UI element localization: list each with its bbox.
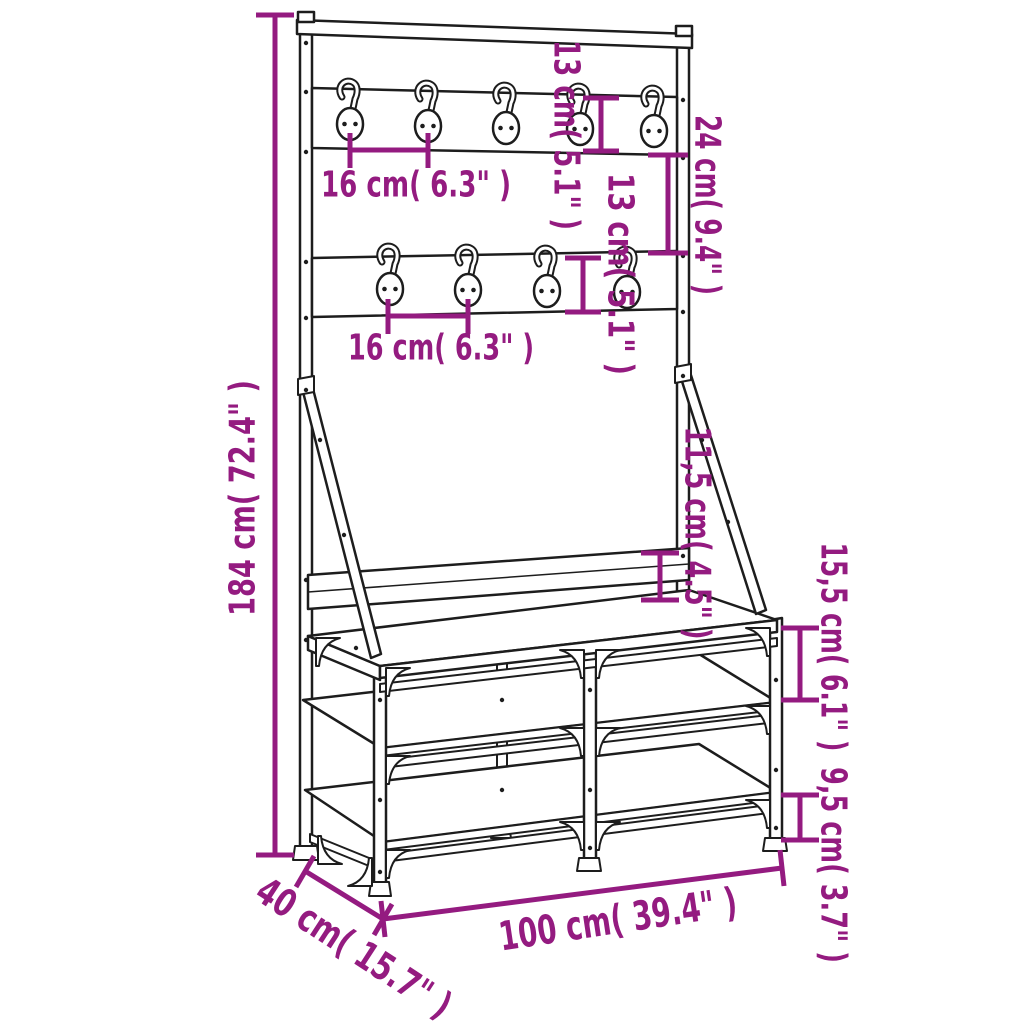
dimension-label: 15,5 cm( 6.1" ) [813,543,854,752]
dimension-bottom-shelf-clearance: 9,5 cm( 3.7" ) [781,767,854,963]
dimension-total-height: 184 cm( 72.4" ) [223,15,295,855]
diagram-canvas: 184 cm( 72.4" ) 16 cm( 6.3" ) 13 cm( 5.1… [0,0,1024,1024]
dimension-total-depth: 40 cm( 15.7" ) [248,856,460,1024]
dimension-label: 13 cm( 5.1" ) [600,173,641,375]
dimension-label: 13 cm( 5.1" ) [546,40,587,230]
left-post-cap [298,12,314,22]
dimension-label: 100 cm( 39.4" ) [496,880,740,961]
right-post-cap [676,26,692,36]
dimension-label: 184 cm( 72.4" ) [223,380,264,616]
product-dimension-diagram: 184 cm( 72.4" ) 16 cm( 6.3" ) 13 cm( 5.1… [0,0,1024,1024]
dimension-label: 16 cm( 6.3" ) [321,165,511,206]
dimension-label: 24 cm( 9.4" ) [687,115,728,295]
dimension-label: 40 cm( 15.7" ) [248,869,460,1024]
dimension-label: 11,5 cm( 4.5" ) [677,427,718,640]
dimension-seat-to-shelf: 15,5 cm( 6.1" ) [781,543,854,752]
dimension-annotations: 184 cm( 72.4" ) 16 cm( 6.3" ) 13 cm( 5.1… [223,15,854,1024]
dimension-label: 9,5 cm( 3.7" ) [813,767,854,963]
dimension-label: 16 cm( 6.3" ) [348,328,534,369]
top-bar [297,20,692,48]
